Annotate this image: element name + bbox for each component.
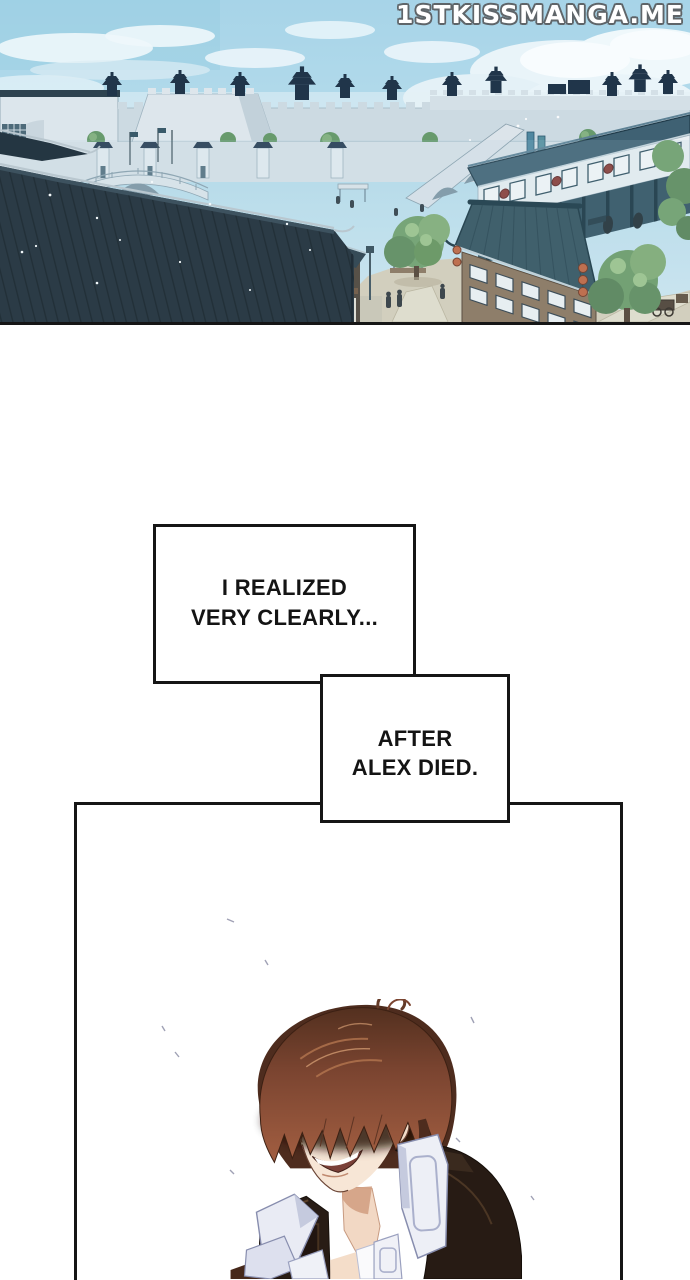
scenery-illustration — [0, 0, 690, 322]
caption-line: ALEX DIED. — [323, 753, 507, 782]
site-watermark: 1STKISSMANGA.ME — [396, 0, 684, 29]
caption-line: VERY CLEARLY... — [156, 603, 413, 633]
manga-page: 1STKISSMANGA.ME I REALIZED VERY CLEARLY.… — [0, 0, 690, 1280]
caption-line: I REALIZED — [156, 573, 413, 603]
character-illustration — [230, 999, 540, 1279]
caption-box-1: I REALIZED VERY CLEARLY... — [153, 524, 416, 684]
character-panel — [74, 802, 623, 1280]
caption-box-2: AFTER ALEX DIED. — [320, 674, 510, 823]
scenery-panel: 1STKISSMANGA.ME — [0, 0, 690, 325]
caption-line: AFTER — [323, 724, 507, 753]
